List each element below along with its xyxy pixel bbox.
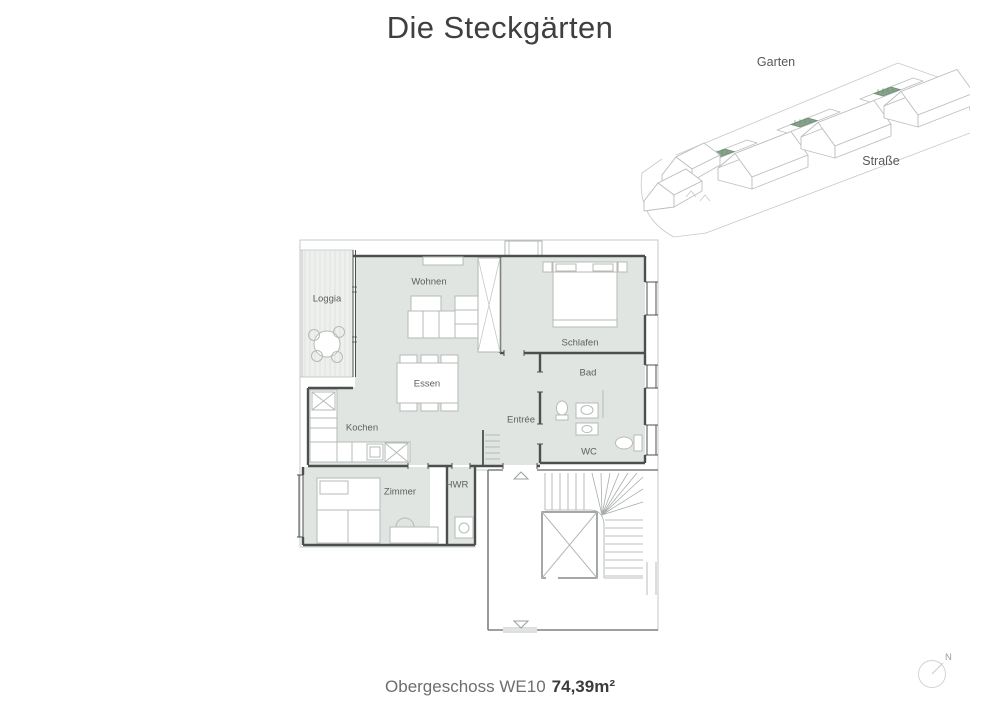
single-bed-icon (317, 478, 380, 543)
north-label: N (945, 652, 952, 663)
page: Die Steckgärten (0, 0, 1000, 707)
caption: Obergeschoss WE1074,39m² (0, 677, 1000, 697)
room-label-entree: Entrée (507, 415, 535, 426)
site-plan-drawing (640, 25, 970, 250)
bath-toilet-icon (556, 401, 568, 420)
room-label-hwr: HWR (446, 480, 469, 491)
caption-area: 74,39m² (552, 677, 615, 696)
washing-machine-icon (455, 517, 473, 538)
room-label-wc: WC (581, 447, 597, 458)
floor-plan-drawing (290, 232, 670, 637)
double-bed-icon (543, 262, 627, 327)
stair-up-arrow-icon (514, 472, 528, 479)
elevator-icon (542, 512, 597, 580)
stair-down-arrow-icon (514, 621, 528, 628)
room-label-kochen: Kochen (346, 423, 378, 434)
stairwell (488, 470, 658, 632)
garten-label: Garten (757, 55, 795, 69)
site-houses (644, 70, 970, 212)
strasse-label: Straße (862, 154, 900, 168)
room-label-wohnen: Wohnen (411, 277, 446, 288)
north-compass: N (912, 650, 964, 698)
room-label-schlafen: Schlafen (562, 338, 599, 349)
chimney (505, 241, 542, 256)
room-label-bad: Bad (580, 368, 597, 379)
loggia-deck (300, 250, 353, 377)
north-arrow-icon (912, 650, 964, 698)
caption-floor-unit: Obergeschoss WE10 (385, 677, 546, 696)
floor-plan: Loggia Wohnen Schlafen Essen Bad Entrée … (290, 232, 670, 637)
bath-sink-icon (576, 403, 598, 418)
room-label-loggia: Loggia (313, 294, 342, 305)
site-plan: Garten Straße (640, 25, 970, 250)
room-label-essen: Essen (414, 379, 440, 390)
wardrobe-icon (478, 258, 500, 352)
wc-sink-icon (576, 423, 598, 435)
room-label-zimmer: Zimmer (384, 487, 416, 498)
